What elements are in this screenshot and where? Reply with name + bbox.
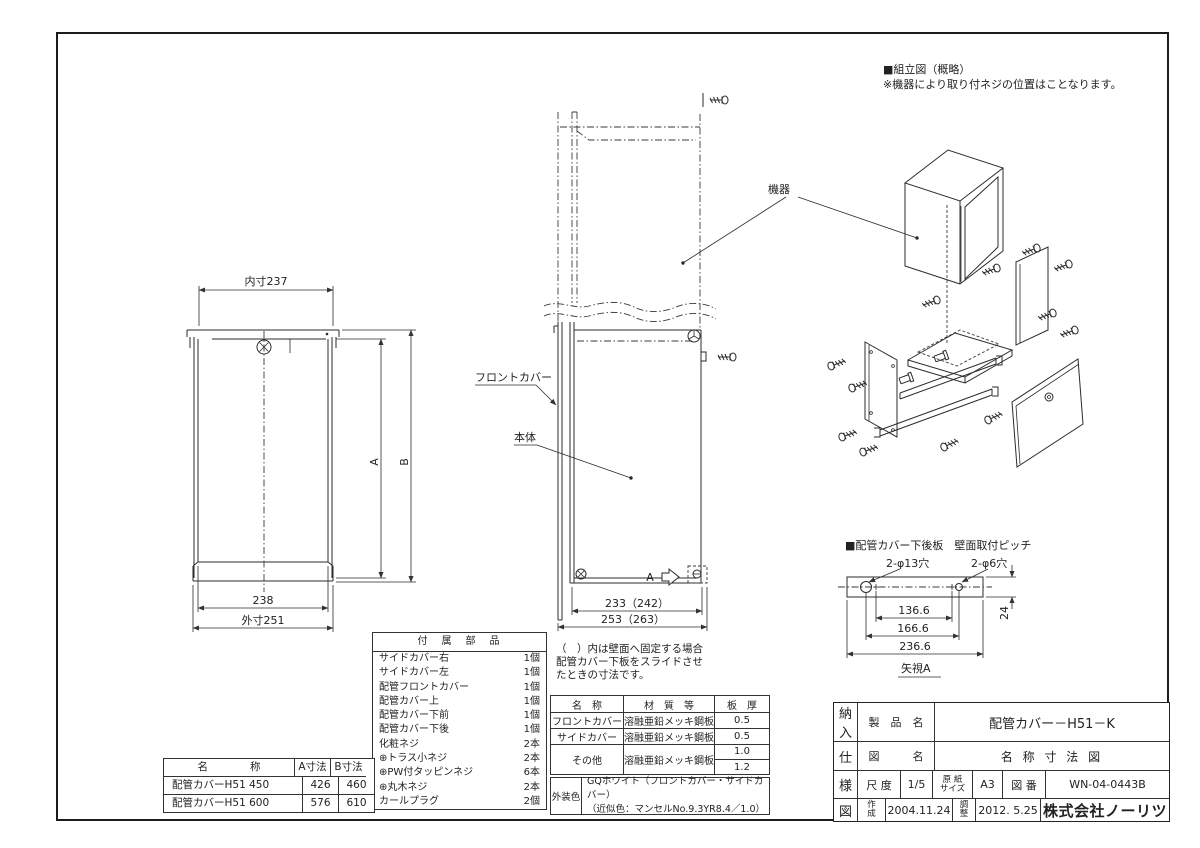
part-name: ⊕PW付タッピンネジ	[379, 766, 473, 780]
equipment-label-group: 機器	[681, 182, 918, 265]
screw-icon	[859, 443, 879, 457]
assembly-note-body: ※機器により取り付ネジの位置はことなります。	[883, 77, 1122, 92]
part-name: 配管フロントカバー	[379, 681, 469, 695]
screw-icon	[940, 437, 960, 452]
material-material: 溶融亜鉛メッキ鋼板	[624, 713, 715, 729]
material-row: フロントカバー 溶融亜鉛メッキ鋼板 0.5	[551, 713, 769, 729]
screw-icon	[710, 96, 728, 104]
part-name: ⊕トラス小ネジ	[379, 752, 447, 766]
material-table: 名 称 材 質 等 板 厚 フロントカバー 溶融亜鉛メッキ鋼板 0.5 サイドカ…	[550, 695, 770, 775]
size-row: 配管カバーH51 600 576 610	[164, 795, 374, 812]
view-direction-label: 矢視A	[901, 661, 931, 675]
dim-width: 233（242）	[605, 597, 669, 610]
material-name: サイドカバー	[551, 729, 624, 745]
scale-label: 尺 度	[858, 771, 901, 798]
color-line1: GQホワイト（フロントカバー・サイドカバー）	[587, 775, 769, 803]
assembly-note: ■組立図（概略） ※機器により取り付ネジの位置はことなります。	[883, 62, 1122, 92]
screw-icon	[838, 428, 858, 442]
part-name: 配管カバー下前	[379, 709, 449, 723]
created-label: 成	[867, 810, 876, 819]
material-thickness: 1.0	[715, 745, 769, 760]
doc-char: 様	[839, 775, 852, 794]
color-label: 外装色	[551, 778, 582, 814]
size-name: 配管カバーH51 450	[164, 777, 303, 795]
size-a: 426	[303, 777, 339, 795]
material-name: その他	[551, 745, 624, 774]
material-thickness: 0.5	[715, 713, 769, 729]
screw-icon	[922, 295, 942, 309]
parts-table-title: 付 属 部 品	[373, 633, 546, 652]
document-type-column: 納 入 仕 様 図	[834, 703, 858, 821]
part-qty: 2本	[524, 738, 540, 752]
size-row: 配管カバーH51 450 426 460	[164, 777, 374, 795]
material-col-name: 名 称	[551, 696, 624, 713]
material-material: 溶融亜鉛メッキ鋼板	[624, 745, 715, 774]
dim-width: 238	[253, 594, 274, 607]
pitch-view-title: ■配管カバー下後板 壁面取付ピッチ	[845, 538, 1031, 552]
part-qty: 2個	[524, 795, 540, 809]
size-col-b: B寸法	[331, 759, 366, 777]
assembly-note-title: ■組立図（概略）	[883, 62, 1122, 77]
part-qty: 1個	[524, 723, 540, 737]
size-col-a: A寸法	[295, 759, 331, 777]
material-header: 名 称 材 質 等 板 厚	[551, 696, 769, 713]
part-name: ⊕丸木ネジ	[379, 781, 427, 795]
part-name: サイドカバー右	[379, 652, 449, 666]
parts-row: 配管フロントカバー1個	[373, 681, 546, 695]
section-arrow-label: A	[646, 571, 654, 584]
screw-icon	[718, 353, 736, 361]
material-thickness: 0.5	[715, 729, 769, 745]
color-line2: （近似色：マンセルNo.9.3YR8.4／1.0）	[587, 803, 769, 817]
dim-b-label: B	[398, 458, 411, 466]
accessory-parts-table: 付 属 部 品 サイドカバー右1個 サイドカバー左1個 配管フロントカバー1個 …	[372, 632, 547, 810]
doc-char: 入	[839, 722, 852, 741]
size-col-name: 名 称	[164, 759, 295, 777]
dimension-note-line1: （ ）内は壁面へ固定する場合	[556, 643, 703, 656]
paper-size-label: サイズ	[940, 785, 965, 794]
material-col-material: 材 質 等	[624, 696, 715, 713]
doc-char: 図	[839, 801, 852, 820]
material-row: その他 溶融亜鉛メッキ鋼板 1.0 1.2	[551, 745, 769, 774]
material-name: フロントカバー	[551, 713, 624, 729]
dim-height: 24	[998, 606, 1011, 620]
side-view-drawing: A 233（242） 253（263） フロントカバー 本体	[475, 93, 736, 631]
parts-row: 配管カバー下後1個	[373, 723, 546, 737]
part-name: サイドカバー左	[379, 666, 449, 680]
revised-label: 整	[960, 810, 969, 819]
part-qty: 2本	[524, 752, 540, 766]
revised-date: 2012. 5.25	[976, 799, 1041, 821]
material-col-thickness: 板 厚	[715, 696, 769, 713]
material-row: サイドカバー 溶融亜鉛メッキ鋼板 0.5	[551, 729, 769, 745]
dimension-note: （ ）内は壁面へ固定する場合 配管カバー下板をスライドさせ たときの寸法です。	[556, 643, 703, 682]
size-b: 460	[339, 777, 374, 795]
drawing-name-value: 名 称 寸 法 図	[935, 742, 1169, 770]
anchor-plug-icon	[898, 372, 913, 385]
size-a: 576	[303, 795, 339, 812]
dimension-note-line2: 配管カバー下板をスライドさせ	[556, 656, 703, 669]
screw-icon	[1060, 325, 1080, 339]
hole-label-left: 2-φ13穴	[886, 556, 929, 570]
front-view-drawing: 内寸237 A B 238 外寸251	[187, 274, 416, 632]
material-thickness: 1.2	[715, 760, 769, 774]
doc-char: 仕	[839, 747, 852, 766]
doc-char: 納	[839, 703, 852, 722]
size-table: 名 称 A寸法 B寸法 配管カバーH51 450 426 460 配管カバーH5…	[163, 758, 375, 813]
created-date: 2004.11.24	[886, 799, 953, 821]
part-qty: 1個	[524, 681, 540, 695]
screw-icon	[827, 357, 847, 371]
title-block: 納 入 仕 様 図 製 品 名 配管カバー－H51－K 図 名 名 称 寸 法 …	[833, 702, 1170, 822]
dim-hole-pitch: 136.6	[898, 604, 930, 617]
parts-row: 化粧ネジ2本	[373, 738, 546, 752]
drawing-number-label: 図 番	[1003, 771, 1046, 798]
part-qty: 6本	[524, 766, 540, 780]
size-b: 610	[339, 795, 374, 812]
drawing-sheet: 内寸237 A B 238 外寸251 A	[0, 0, 1200, 848]
dim-inner-width: 内寸237	[245, 274, 288, 288]
screw-icon	[984, 410, 1004, 425]
screw-icon	[1054, 259, 1074, 273]
dimension-note-line3: たときの寸法です。	[556, 669, 703, 682]
parts-row: サイドカバー右1個	[373, 652, 546, 666]
screw-icon	[1038, 308, 1058, 322]
part-qty: 1個	[524, 709, 540, 723]
part-qty: 1個	[524, 652, 540, 666]
part-qty: 2本	[524, 781, 540, 795]
front-cover-label: フロントカバー	[475, 371, 552, 384]
parts-row: ⊕丸木ネジ2本	[373, 781, 546, 795]
pitch-view-drawing: ■配管カバー下後板 壁面取付ピッチ 2-φ13穴 2-φ6穴 136.6 166…	[838, 538, 1031, 677]
drawing-name-label: 図 名	[858, 742, 935, 770]
dim-a-label: A	[368, 458, 381, 466]
part-qty: 1個	[524, 666, 540, 680]
part-name: 配管カバー上	[379, 695, 439, 709]
parts-row: 配管カバー上1個	[373, 695, 546, 709]
drawing-number-value: WN-04-0443B	[1046, 771, 1169, 798]
size-name: 配管カバーH51 600	[164, 795, 303, 812]
product-name-label: 製 品 名	[858, 703, 935, 741]
part-qty: 1個	[524, 695, 540, 709]
part-name: カールプラグ	[379, 795, 439, 809]
equipment-label: 機器	[768, 182, 790, 196]
part-name: 配管カバー下後	[379, 723, 449, 737]
paper-size-value: A3	[973, 771, 1003, 798]
anchor-plug-icon	[933, 350, 948, 363]
exploded-assembly-view	[827, 150, 1083, 467]
parts-row: カールプラグ2個	[373, 795, 546, 809]
dim-outer-width: 外寸251	[242, 613, 285, 627]
dim-hole-centers: 166.6	[897, 622, 929, 635]
company-name: 株式会社ノーリツ	[1041, 799, 1169, 821]
parts-row: サイドカバー左1個	[373, 666, 546, 680]
parts-row: 配管カバー下前1個	[373, 709, 546, 723]
parts-row: ⊕PW付タッピンネジ6本	[373, 766, 546, 780]
dim-overall: 236.6	[899, 640, 931, 653]
material-material: 溶融亜鉛メッキ鋼板	[624, 729, 715, 745]
body-label: 本体	[514, 430, 536, 444]
exterior-color-box: 外装色 GQホワイト（フロントカバー・サイドカバー） （近似色：マンセルNo.9…	[550, 777, 770, 815]
size-table-header: 名 称 A寸法 B寸法	[164, 759, 374, 777]
scale-value: 1/5	[901, 771, 933, 798]
hole-label-right: 2-φ6穴	[971, 556, 1007, 570]
parts-row: ⊕トラス小ネジ2本	[373, 752, 546, 766]
dim-outer-width: 253（263）	[601, 613, 665, 626]
part-name: 化粧ネジ	[379, 738, 419, 752]
product-name-value: 配管カバー－H51－K	[935, 703, 1169, 741]
